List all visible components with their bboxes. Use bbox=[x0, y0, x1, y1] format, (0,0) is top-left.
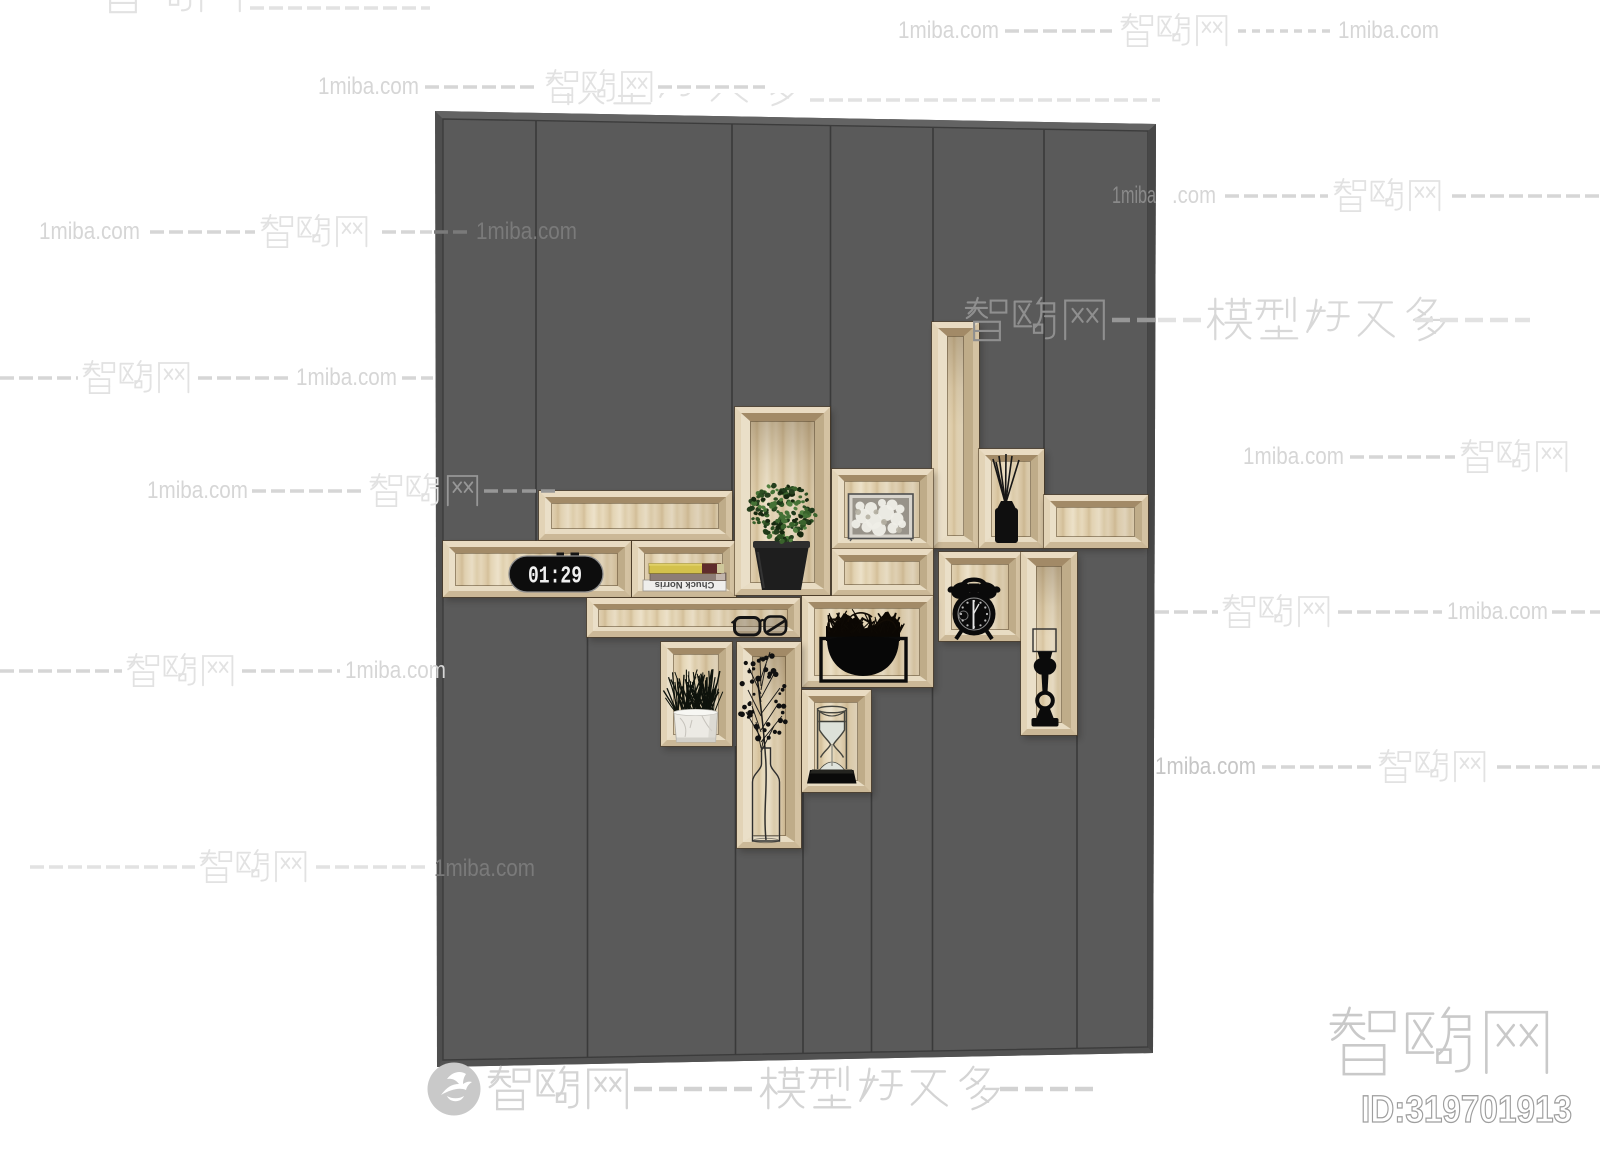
svg-text:1miba.com: 1miba.com bbox=[476, 218, 577, 245]
svg-text:1miba.com: 1miba.com bbox=[1243, 443, 1344, 470]
svg-text:1miba.com: 1miba.com bbox=[39, 218, 140, 245]
svg-text:1miba: 1miba bbox=[1112, 182, 1156, 209]
svg-text:1miba.com: 1miba.com bbox=[318, 73, 419, 100]
svg-text:1miba.com: 1miba.com bbox=[345, 657, 446, 684]
svg-text:.com: .com bbox=[1172, 182, 1216, 209]
svg-text:1miba.com: 1miba.com bbox=[898, 17, 999, 44]
svg-text:1miba.com: 1miba.com bbox=[147, 477, 248, 504]
svg-text:1miba.com: 1miba.com bbox=[1447, 598, 1548, 625]
svg-text:1miba.com: 1miba.com bbox=[1338, 17, 1439, 44]
svg-text:ID:319701913: ID:319701913 bbox=[1361, 1089, 1572, 1131]
svg-text:1miba.com: 1miba.com bbox=[1155, 753, 1256, 780]
svg-text:1miba.com: 1miba.com bbox=[296, 364, 397, 391]
svg-text:1miba.com: 1miba.com bbox=[434, 855, 535, 882]
